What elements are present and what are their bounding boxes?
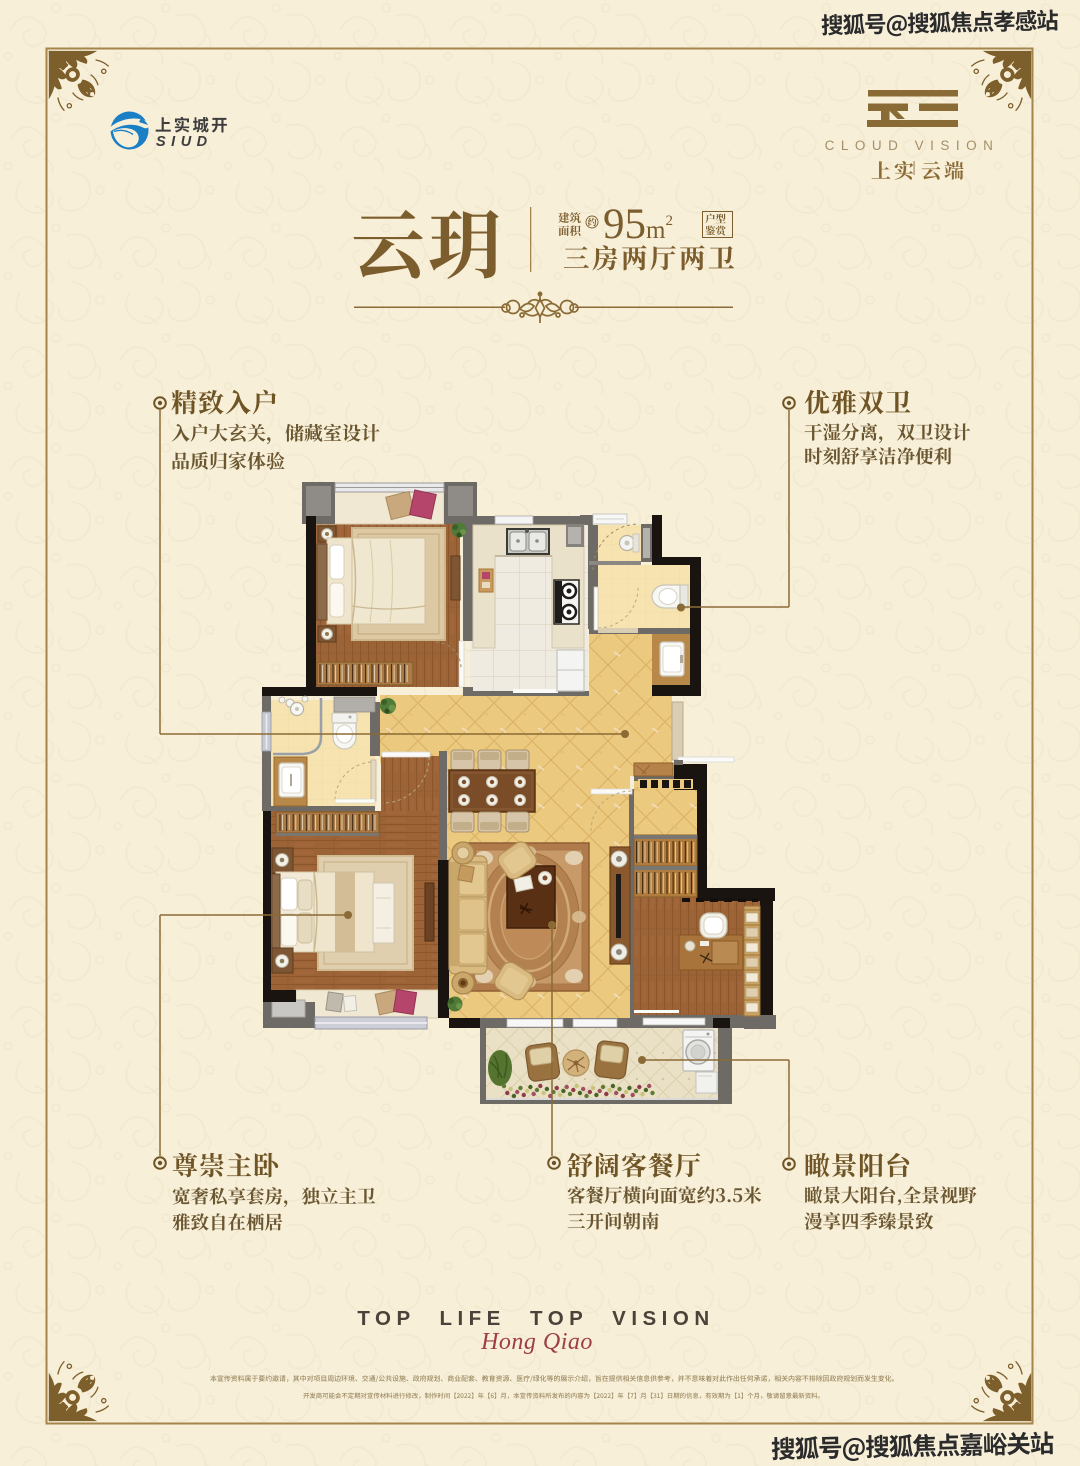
svg-text:Hong Qiao: Hong Qiao [480,1329,593,1355]
svg-text:CLOUD VISION: CLOUD VISION [825,138,1000,153]
svg-text:SIUD: SIUD [156,134,213,150]
svg-text:TOP LIFE TOP VISION: TOP LIFE TOP VISION [357,1307,714,1330]
